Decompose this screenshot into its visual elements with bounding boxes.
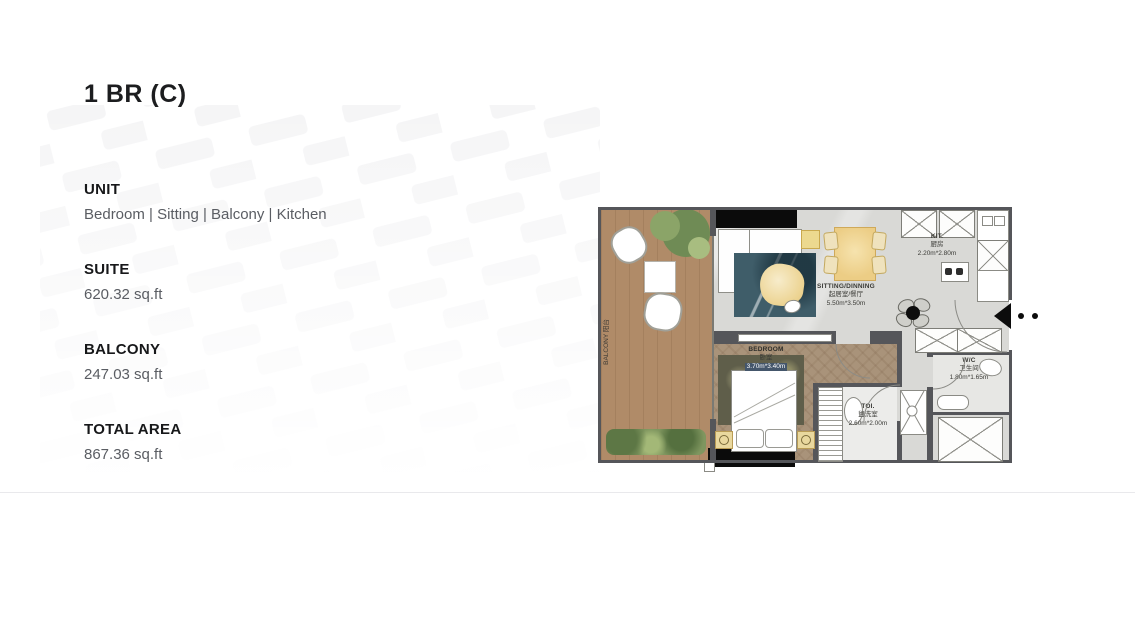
plant-icon (894, 297, 931, 330)
entry-arrow-icon (994, 303, 1046, 331)
entry-arrow-triangle (994, 303, 1011, 329)
page-title: 1 BR (C) (84, 80, 187, 109)
wc-door-arc (933, 357, 965, 389)
spec-suite: SUITE 620.32 sq.ft (84, 261, 414, 303)
bed-fold-lines (734, 383, 795, 423)
spec-balcony: BALCONY 247.03 sq.ft (84, 341, 414, 383)
bedroom-door-arc (836, 344, 870, 378)
spec-total-area-label: TOTAL AREA (84, 421, 414, 438)
spec-total-area: TOTAL AREA 867.36 sq.ft (84, 421, 414, 463)
entry-arrow-dot-2 (1032, 313, 1038, 319)
entry-arrow-dot-1 (1018, 313, 1024, 319)
spec-unit: UNIT Bedroom | Sitting | Balcony | Kitch… (84, 181, 414, 223)
spec-unit-value: Bedroom | Sitting | Balcony | Kitchen (84, 206, 414, 223)
spec-balcony-label: BALCONY (84, 341, 414, 358)
spec-total-area-value: 867.36 sq.ft (84, 446, 414, 463)
spec-balcony-value: 247.03 sq.ft (84, 366, 414, 383)
toilet-door-arc (864, 385, 900, 421)
spec-suite-value: 620.32 sq.ft (84, 286, 414, 303)
spec-unit-label: UNIT (84, 181, 414, 198)
floor-plan: BALCONY 阳台 (598, 207, 1012, 467)
spec-suite-label: SUITE (84, 261, 414, 278)
page: 1 BR (C) UNIT Bedroom | Sitting | Balcon… (0, 0, 1135, 622)
shower-drain (907, 406, 917, 416)
watermark-fade (40, 105, 600, 535)
page-divider (0, 492, 1135, 493)
plan-linework (598, 207, 1012, 467)
